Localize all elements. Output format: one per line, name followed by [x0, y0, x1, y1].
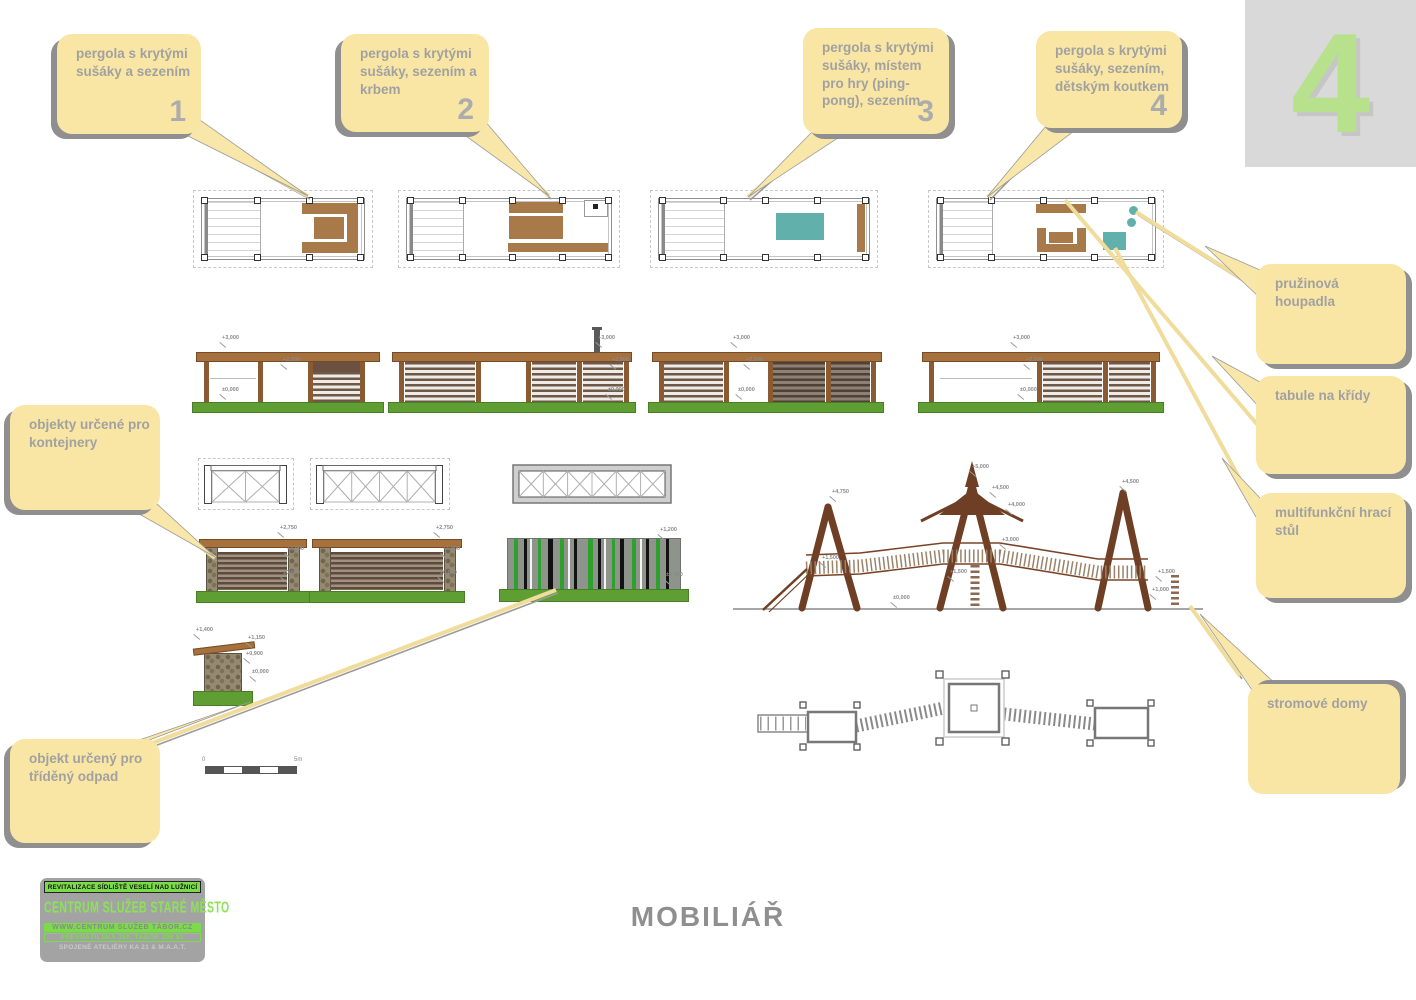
game-table-plan — [1103, 232, 1126, 250]
callout-pergola-2-number: 2 — [457, 90, 474, 130]
elevation-mark: +2,500 — [746, 358, 763, 364]
callout-pergola-4-number: 4 — [1150, 86, 1167, 126]
callout-sorted-waste: objekt určený pro tříděný odpad — [10, 739, 160, 843]
pingpong-table-plan — [776, 213, 824, 240]
callout-tree-houses-text: stromové domy — [1267, 696, 1368, 711]
callout-pergola-1: pergola s krytými sušáky a sezením 1 — [57, 34, 201, 134]
elevation-mark: ±0,000 — [893, 596, 910, 602]
spring-rider-plan — [1129, 206, 1138, 215]
sheet-number: 4 — [1291, 13, 1370, 155]
elevation-mark: ±0,000 — [440, 571, 457, 577]
page-title: MOBILIÁŘ — [631, 901, 785, 933]
callout-chalkboards-text: tabule na křídy — [1275, 388, 1370, 403]
elevation-mark: ±0,000 — [222, 388, 239, 394]
elevation-mark: +3,000 — [1013, 336, 1030, 342]
elevation-mark: +1,150 — [248, 636, 265, 642]
elevation-mark: +1,500 — [950, 570, 967, 576]
elevation-mark: +2,500 — [283, 358, 300, 364]
callout-containers: objekty určené pro kontejnery — [10, 405, 160, 510]
callout-tree-houses: stromové domy — [1248, 684, 1400, 794]
bench-plan — [1036, 204, 1086, 213]
callout-game-table: multifunkční hrací stůl — [1256, 493, 1406, 598]
spring-rider-plan — [1127, 218, 1136, 227]
callout-pergola-1-number: 1 — [169, 92, 186, 132]
elevation-mark: +3,000 — [598, 336, 615, 342]
container-2-plan-lattice — [316, 461, 444, 507]
callout-pergola-2-text: pergola s krytými sušáky, sezením a krbe… — [360, 46, 477, 97]
studio-website: WWW.CENTRUM SLUŽEB TÁBOR.CZ — [44, 923, 201, 932]
title-block: REVITALIZACE SÍDLIŠTĚ VESELÍ NAD LUŽNICÍ… — [40, 878, 205, 962]
elevation-mark: +0,900 — [246, 652, 263, 658]
elevation-mark: +4,500 — [992, 486, 1009, 492]
elevation-mark: ±0,000 — [666, 573, 683, 579]
table-plan — [509, 216, 563, 239]
bench-plan — [508, 243, 608, 252]
callout-pergola-1-text: pergola s krytými sušáky a sezením — [76, 46, 190, 79]
elevation-mark: +3,000 — [222, 336, 239, 342]
elevation-mark: +1,200 — [660, 528, 677, 534]
callout-pergola-3-number: 3 — [917, 92, 934, 132]
elevation-mark: +1,000 — [1152, 588, 1169, 594]
drawing-sheet: { "sheet": { "number": "4", "title": "MO… — [0, 0, 1416, 1000]
elevation-mark: ±0,000 — [252, 670, 269, 676]
table-plan — [1049, 232, 1073, 243]
container-3-plan — [512, 464, 672, 504]
rope-bridge-towers-elevation — [725, 455, 1215, 620]
elevation-mark: +2,750 — [436, 526, 453, 532]
elevation-mark: +1,500 — [822, 556, 839, 562]
callout-spring-riders: pružinová houpadla — [1256, 264, 1406, 364]
bench-plan — [857, 204, 865, 252]
elevation-mark: +1,400 — [196, 628, 213, 634]
elevation-mark: ±0,000 — [608, 388, 625, 394]
project-title: REVITALIZACE SÍDLIŠTĚ VESELÍ NAD LUŽNICÍ — [44, 881, 201, 893]
callout-containers-text: objekty určené pro kontejnery — [29, 417, 150, 450]
callout-pergola-4: pergola s krytými sušáky, sezením, dětsk… — [1036, 31, 1182, 128]
elevation-mark: ±0,000 — [738, 388, 755, 394]
callout-pergola-3: pergola s krytými sušáky, místem pro hry… — [803, 28, 949, 134]
elevation-mark: +4,000 — [1008, 503, 1025, 509]
callout-game-table-text: multifunkční hrací stůl — [1275, 505, 1391, 538]
callout-pergola-2: pergola s krytými sušáky, sezením a krbe… — [341, 34, 489, 132]
callout-spring-riders-text: pružinová houpadla — [1275, 276, 1339, 309]
studio-address: PŘEVRÁTILSKÁ 330, TÁBOR 390 01 — [44, 933, 201, 942]
elevation-mark: +3,000 — [733, 336, 750, 342]
studio-partners: SPOJENÉ ATELIÉRY KA 21 & M.A.A.T. — [44, 944, 201, 951]
elevation-mark: ±0,000 — [283, 571, 300, 577]
sheet-number-badge: 4 — [1245, 0, 1416, 167]
callout-sorted-waste-text: objekt určený pro tříděný odpad — [29, 751, 142, 784]
elevation-mark: +2,750 — [280, 526, 297, 532]
elevation-mark: +4,500 — [1122, 480, 1139, 486]
callout-chalkboards: tabule na křídy — [1256, 376, 1406, 474]
elevation-mark: +3,000 — [1002, 538, 1019, 544]
bench-plan — [509, 202, 563, 213]
scalebar-end-label: 5m — [294, 757, 302, 763]
elevation-mark: +2,500 — [1026, 358, 1043, 364]
elevation-mark: +5,000 — [972, 465, 989, 471]
elevation-mark: +2,500 — [612, 358, 629, 364]
table-plan — [314, 217, 344, 239]
elevation-mark: +1,500 — [1158, 570, 1175, 576]
container-1-plan-lattice — [204, 461, 288, 507]
elevation-mark: +4,750 — [832, 490, 849, 496]
studio-name: CENTRUM SLUŽEB STARÉ MĚSTO — [44, 899, 230, 917]
scale-bar — [205, 766, 297, 774]
scalebar-zero-label: 0 — [202, 757, 205, 763]
elevation-mark: ±0,000 — [1020, 388, 1037, 394]
tree-houses-plan — [752, 668, 1162, 752]
elevation-mark: +1,000 — [287, 547, 304, 553]
elevation-mark: +1,000 — [443, 547, 460, 553]
